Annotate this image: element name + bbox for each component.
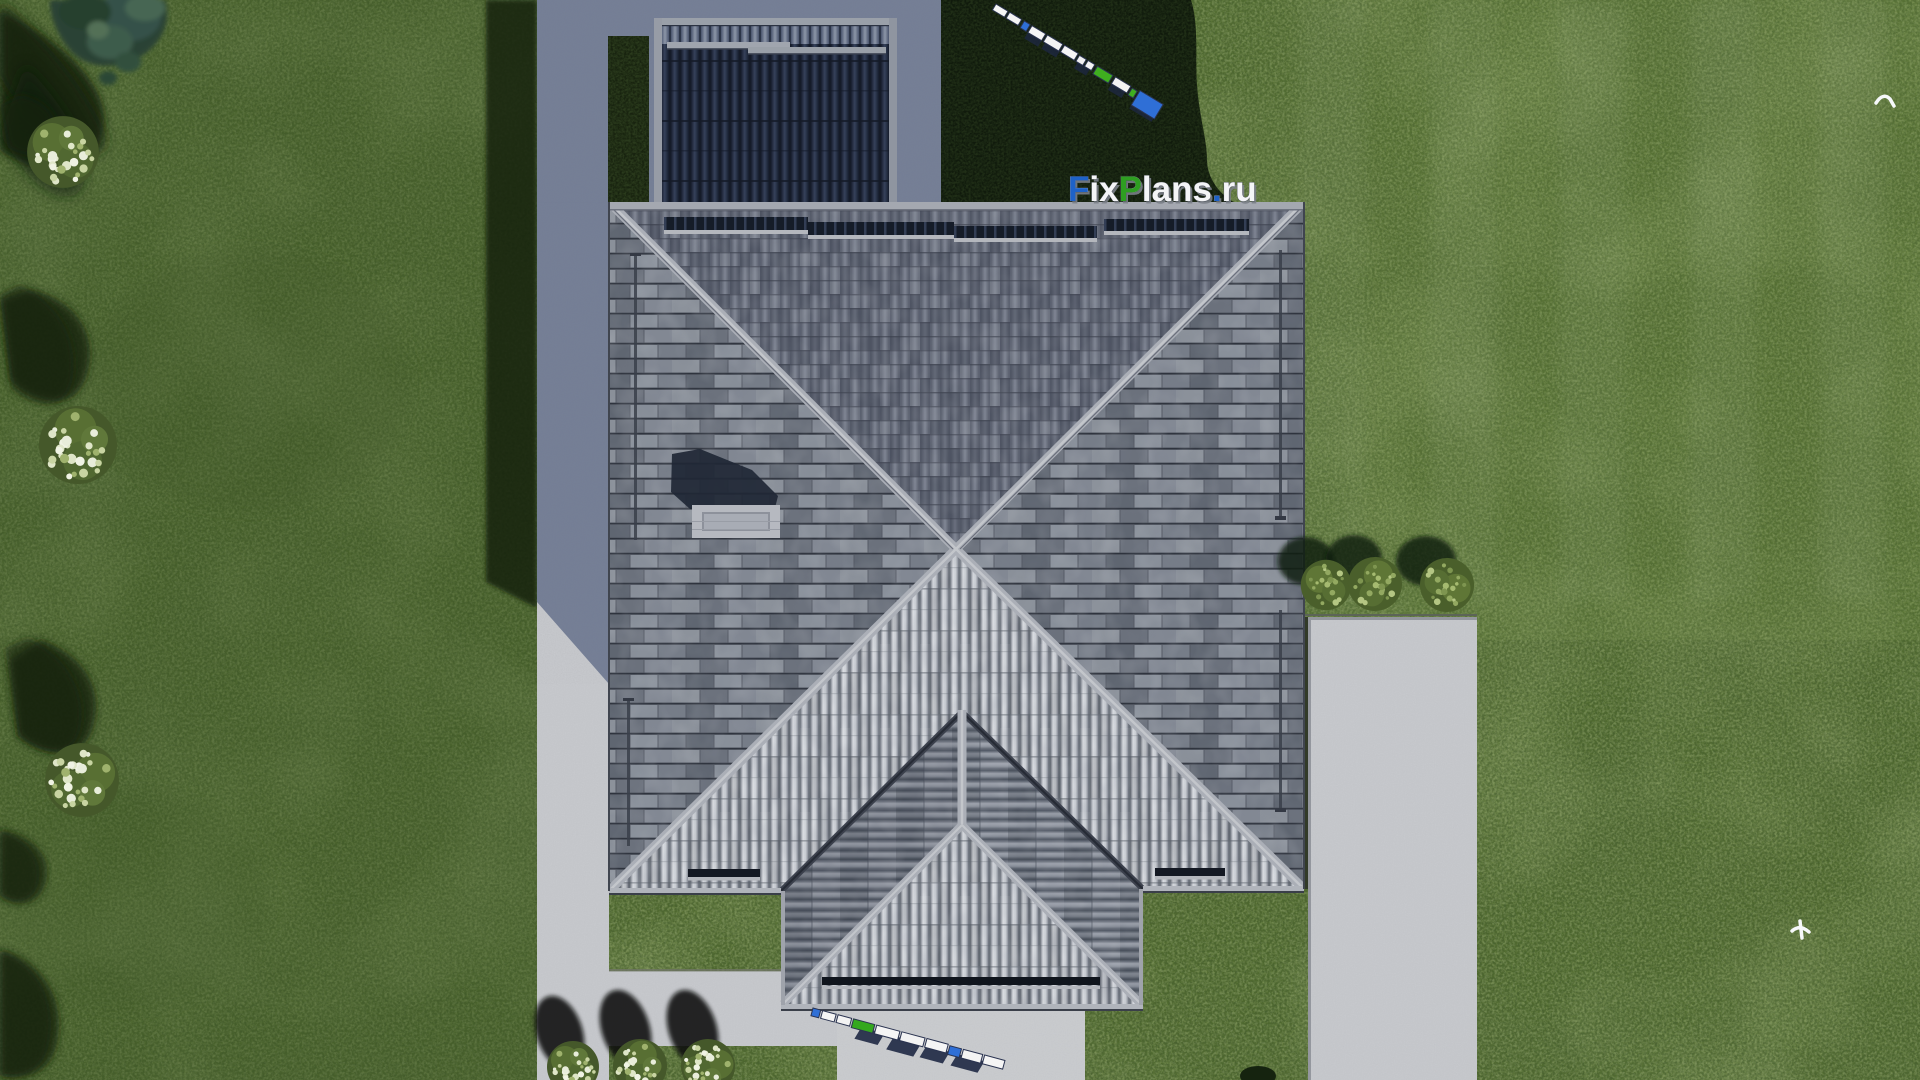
svg-text:.: .	[1212, 170, 1222, 209]
svg-text:FixPlans.ru: FixPlans.ru	[1068, 170, 1257, 209]
svg-text:P: P	[1119, 170, 1142, 209]
svg-text:F: F	[1068, 170, 1089, 209]
